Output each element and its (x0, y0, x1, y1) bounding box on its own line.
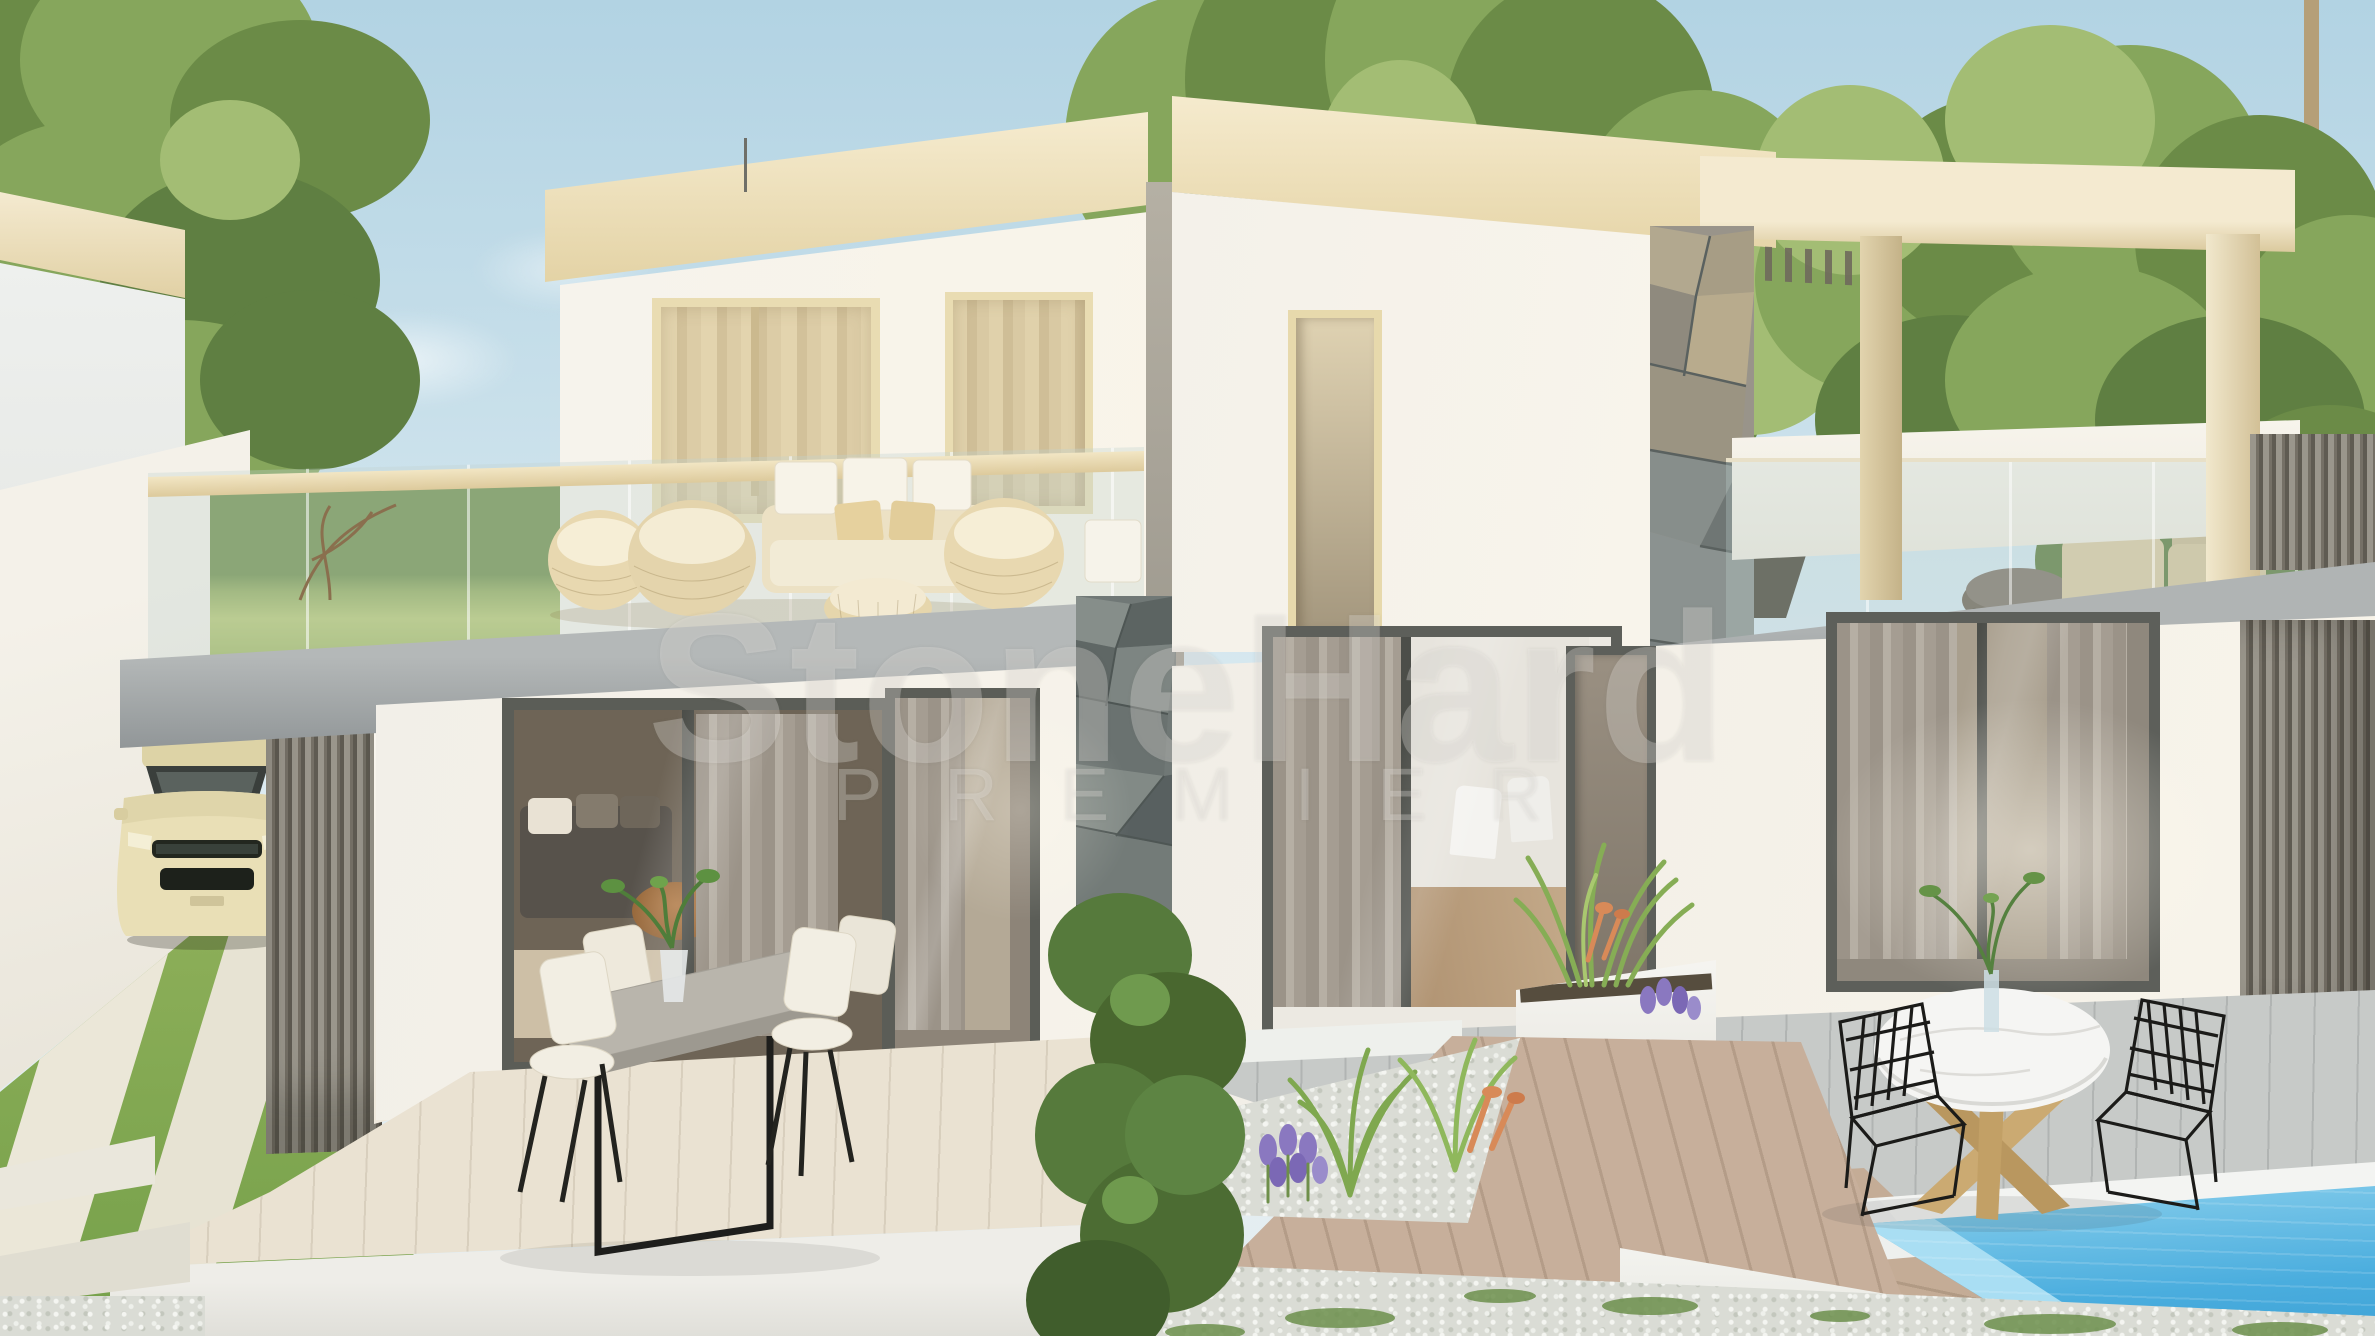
wire-chair-right (2098, 1000, 2224, 1210)
architectural-render: StoneHard PREMIER (0, 0, 2375, 1336)
planter-plants (1516, 845, 1701, 1020)
watermark-subtitle-text: PREMIER (771, 752, 1604, 837)
round-dining-set-right (1822, 872, 2224, 1232)
centre-bush (1026, 893, 1246, 1336)
garden-bed-plants (1259, 1040, 1525, 1202)
dining-set-left (500, 869, 897, 1276)
gravel-grass-tufts (1165, 1289, 2328, 1336)
